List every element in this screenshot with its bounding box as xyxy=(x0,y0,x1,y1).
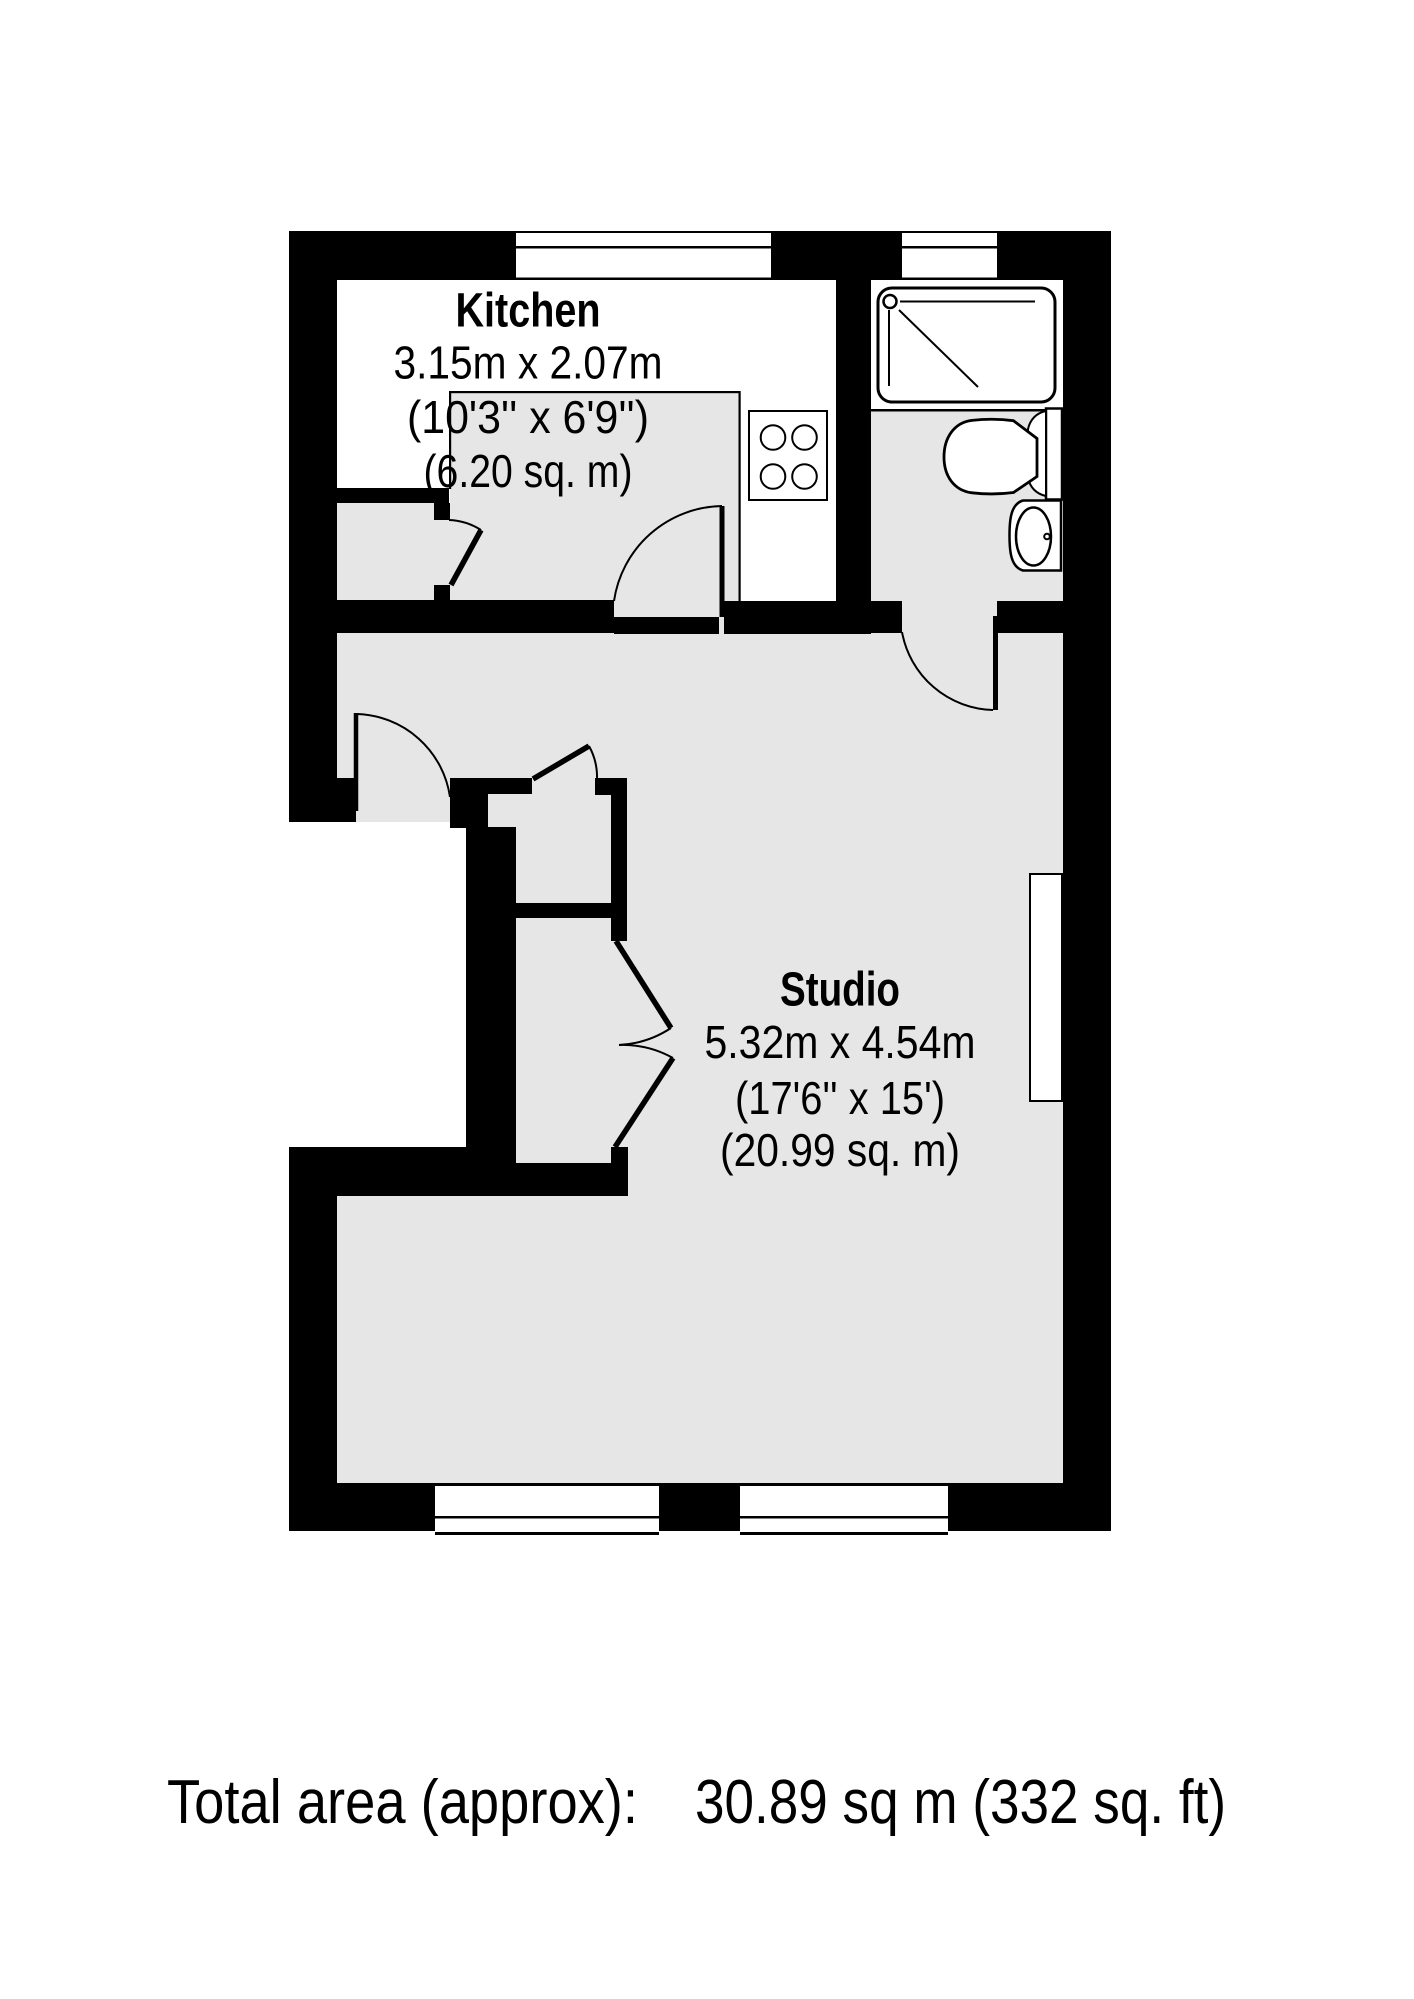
svg-text:5.32m x 4.54m: 5.32m x 4.54m xyxy=(705,1016,976,1068)
svg-text:(20.99 sq. m): (20.99 sq. m) xyxy=(720,1124,960,1176)
svg-text:30.89 sq m (332 sq. ft): 30.89 sq m (332 sq. ft) xyxy=(695,1768,1226,1837)
svg-text:Kitchen: Kitchen xyxy=(456,285,601,338)
svg-text:3.15m x 2.07m: 3.15m x 2.07m xyxy=(394,337,663,389)
svg-text:(17'6'' x 15'): (17'6'' x 15') xyxy=(735,1072,945,1124)
svg-text:(10'3'' x 6'9''): (10'3'' x 6'9'') xyxy=(407,391,649,443)
svg-text:(6.20 sq. m): (6.20 sq. m) xyxy=(424,445,633,497)
svg-text:Studio: Studio xyxy=(780,964,900,1017)
svg-text:Total area (approx):: Total area (approx): xyxy=(167,1768,638,1837)
